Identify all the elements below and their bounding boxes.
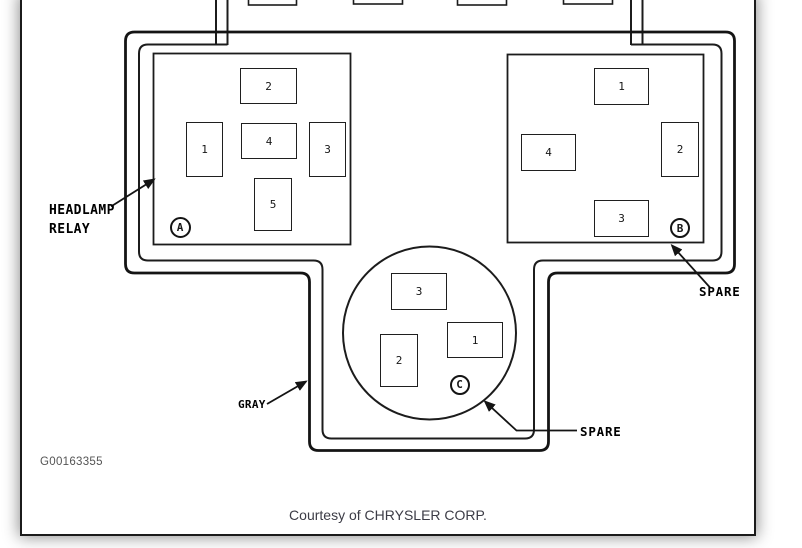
connector-c-designator: C <box>450 375 470 395</box>
pin-box: 3 <box>391 273 447 310</box>
figure-id: G00163355 <box>40 456 103 468</box>
service-manual-page: { "page": { "figure_id": "G00163355", "c… <box>0 0 802 548</box>
pin-box: 4 <box>521 134 576 171</box>
pin-box: 1 <box>447 322 503 358</box>
pin-box: 2 <box>240 68 297 104</box>
spare-b-label: SPARE <box>699 284 741 299</box>
pin-box: 2 <box>380 334 418 387</box>
pin-box: 4 <box>241 123 297 159</box>
connector-a-designator: A <box>170 217 191 238</box>
spare-c-label: SPARE <box>580 424 622 439</box>
caption: Courtesy of CHRYSLER CORP. <box>20 507 756 523</box>
pin-box: 1 <box>594 68 649 105</box>
pin-box: 3 <box>594 200 649 237</box>
pin-box: 1 <box>186 122 223 177</box>
headlamp-relay-label: HEADLAMP RELAY <box>49 202 115 239</box>
pin-box: 3 <box>309 122 346 177</box>
gray-label: GRAY <box>238 398 266 411</box>
connector-b-designator: B <box>670 218 690 238</box>
pin-box: 5 <box>254 178 292 231</box>
pin-box: 2 <box>661 122 699 177</box>
